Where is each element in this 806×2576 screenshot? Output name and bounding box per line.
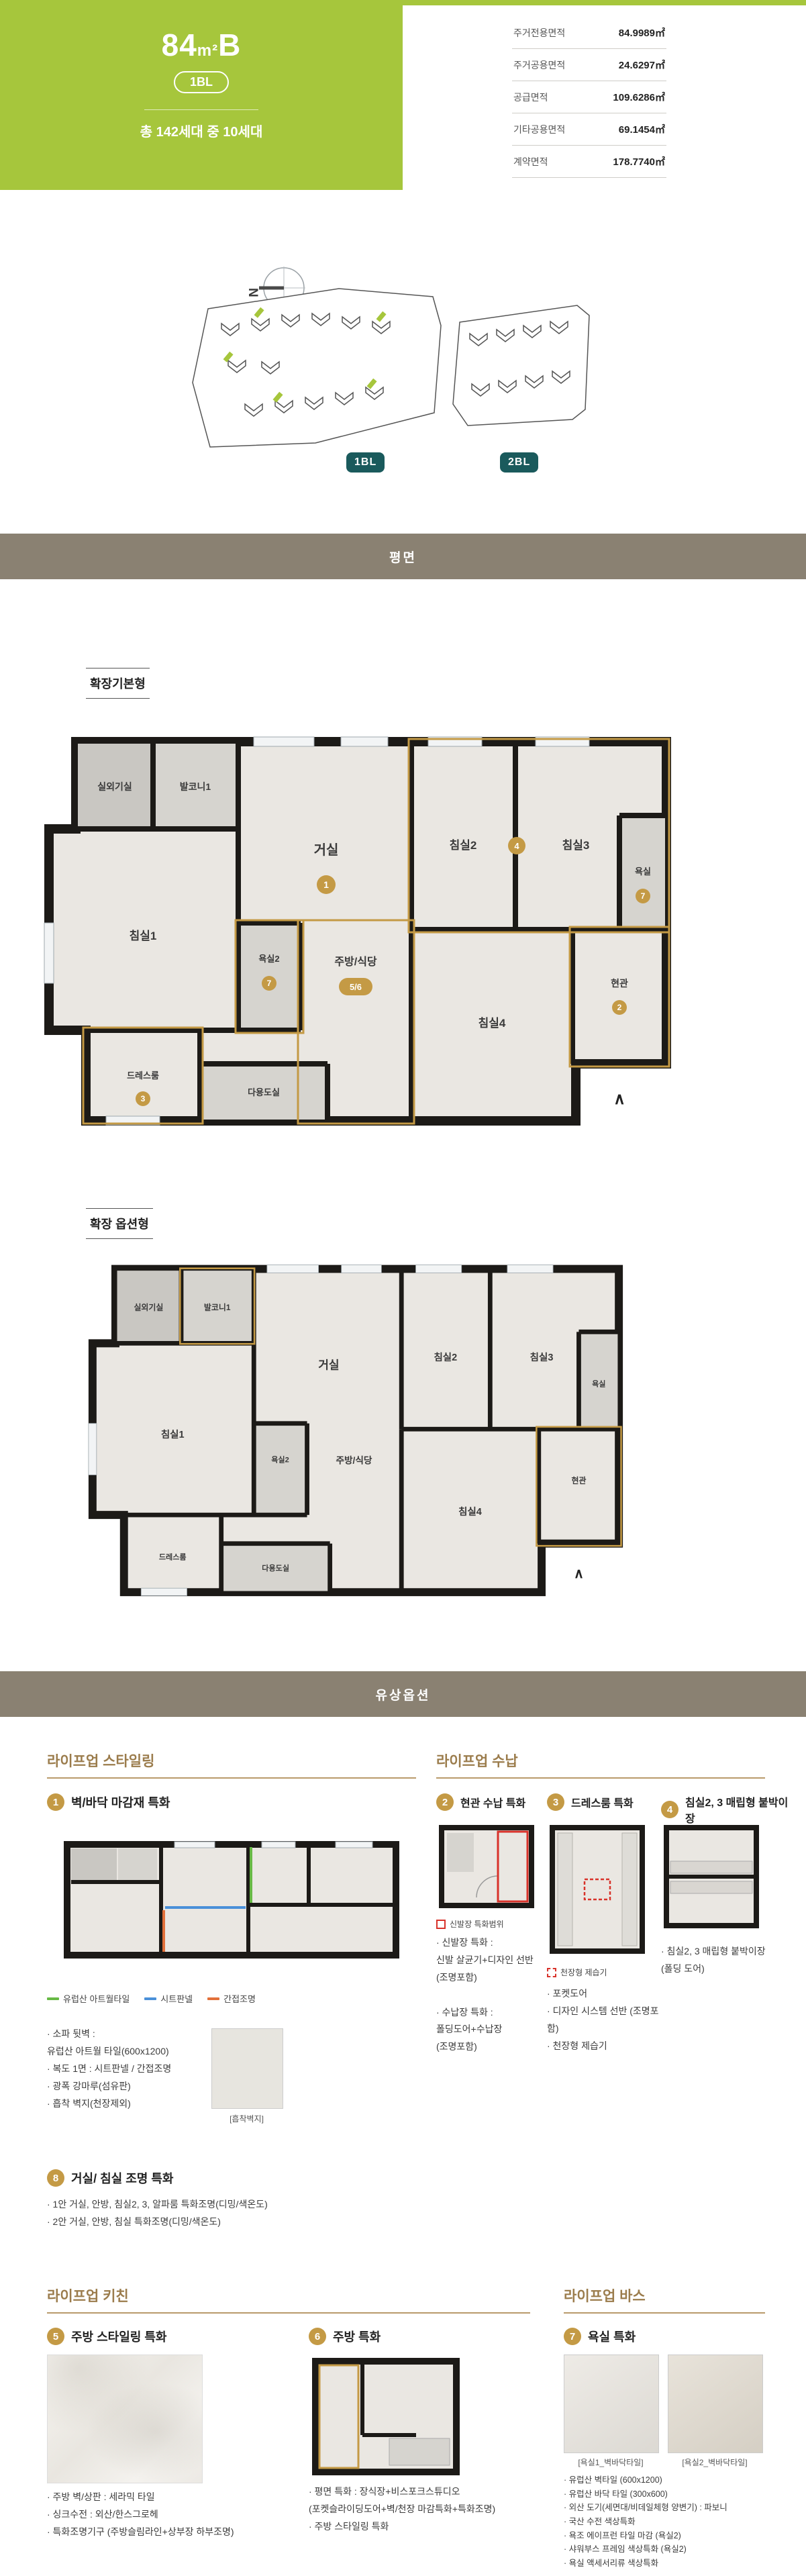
unit-count-text: 총 142세대 중 10세대 [140,121,263,140]
item8-number-badge: 8 [47,2169,64,2187]
marker-bath: 7 [641,891,646,901]
item3-number-badge: 3 [547,1793,564,1811]
legend-red-dashed-box [547,1968,556,1977]
room-living: 거실 [314,842,339,858]
area-label: 공급면적 [513,91,548,104]
area-value: 178.7740㎡ [613,154,665,168]
floorplan-option: 실외기실 발코니1 침실1 거실 침실2 침실3 욕실 욕실2 주방/식당 침실… [84,1252,627,1601]
entry-arrow: ∧ [574,1566,584,1581]
bath2-tile-swatch [668,2355,763,2453]
plan-option-label: 확장 옵션형 [86,1208,153,1239]
item3-bullets: · 포켓도어 · 디자인 시스템 선반 (조명포함) · 천장형 제습기 [547,1985,661,2055]
styling-underline [47,1777,416,1779]
item2-title-row: 2 현관 수납 특화 [436,1793,525,1811]
site-badge-2bl: 2BL [500,452,538,473]
item7-title: 욕실 특화 [588,2328,636,2345]
item3-title-row: 3 드레스룸 특화 [547,1793,634,1811]
item6-bullets: · 평면 특화 : 장식장+비스포크스튜디오 (포켓슬라이딩도어+벽/천장 마감… [309,2483,557,2536]
legend-label: 간접조명 [223,1992,256,2005]
floorplan-basic: 실외기실 발코니1 침실1 거실 1 침실2 4 침실3 욕실 7 욕실2 7 … [39,722,676,1131]
title-unit: m² [197,42,218,60]
room-dress: 드레스룸 [159,1552,187,1562]
legend-label: 유럽산 아트월타일 [63,1992,130,2005]
room-outdoor-unit: 실외기실 [97,781,132,792]
item4-title-row: 4 침실2, 3 매립형 붙박이장 [661,1793,795,1826]
room-entry: 현관 [611,978,628,989]
bath2-tile-caption: [욕실2_벽바닥타일] [668,2457,762,2468]
table-row: 주거공용면적 24.6297㎡ [512,49,666,81]
legend-sheet: 시트판넬 [144,1992,193,2005]
green-top-strip [403,0,806,5]
table-row: 계약면적 178.7740㎡ [512,146,666,178]
dressroom-mini-plan [547,1822,648,1956]
wallpaper-swatch-caption: [흡착벽지] [211,2113,282,2124]
item3-legend: 천장형 제습기 [547,1967,607,1978]
table-row: 주거전용면적 84.9989㎡ [512,17,666,49]
brochure-page: 84m²B 1BL 총 142세대 중 10세대 주거전용면적 84.9989㎡… [0,0,806,2576]
marker-living: 1 [323,879,329,890]
bath-underline [564,2312,765,2314]
styling-mini-plan [47,1824,416,1977]
area-label: 주거공용면적 [513,58,565,72]
bedroom23-mini-plan [661,1822,762,1931]
room-bath2: 욕실2 [271,1455,289,1465]
marker-entry: 2 [617,1003,622,1012]
room-bedroom1: 침실1 [130,929,157,942]
marker-bed23: 4 [514,841,519,851]
page-title: 84m²B [162,27,242,63]
bath1-tile-swatch [564,2355,659,2453]
site-plan-map [144,282,668,483]
item4-number-badge: 4 [661,1801,678,1818]
entry-mini-plan [436,1822,537,1911]
item7-title-row: 7 욕실 특화 [564,2328,636,2345]
room-entry: 현관 [571,1476,586,1485]
header-divider [144,109,258,110]
kitchen-header: 라이프업 키친 [47,2285,129,2306]
item8-title-row: 8 거실/ 침실 조명 특화 [47,2169,173,2187]
item1-title: 벽/바닥 마감재 특화 [71,1793,170,1811]
item2-title: 현관 수납 특화 [460,1794,525,1810]
room-bedroom3: 침실3 [562,838,590,852]
room-bath2: 욕실2 [258,954,279,964]
site-block1-outline [193,289,441,447]
legend-green-swatch [47,1997,59,2000]
item7-bullets: · 유럽산 벽타일 (600x1200) · 유럽산 바닥 타일 (300x60… [564,2473,778,2570]
item5-number-badge: 5 [47,2328,64,2345]
area-value: 69.1454㎡ [619,122,665,136]
bath1-tile-caption: [욕실1_벽바닥타일] [564,2457,658,2468]
legend-artwall: 유럽산 아트월타일 [47,1992,130,2005]
table-row: 공급면적 109.6286㎡ [512,81,666,113]
legend-light: 간접조명 [207,1992,256,2005]
item8-title: 거실/ 침실 조명 특화 [71,2169,173,2187]
title-suffix: B [218,28,241,62]
area-label: 계약면적 [513,155,548,168]
room-dress: 드레스룸 [127,1071,159,1081]
site-block2-outline [453,305,589,426]
room-utility: 다용도실 [262,1563,289,1573]
legend-label: 시트판넬 [160,1992,193,2005]
room-balcony1: 발코니1 [180,781,211,792]
unit-type-header: 84m²B 1BL 총 142세대 중 10세대 [0,0,403,190]
room-utility: 다용도실 [248,1087,280,1097]
marker-kitchen: 5/6 [350,982,362,992]
wallpaper-swatch [211,2028,283,2109]
legend-red-box [436,1920,446,1929]
item6-title-row: 6 주방 특화 [309,2328,381,2345]
area-value: 84.9989㎡ [619,26,665,40]
room-balcony1: 발코니1 [204,1303,231,1312]
room-kitchen: 주방/식당 [334,956,377,968]
room-bedroom3: 침실3 [530,1352,554,1363]
site-badge-1bl: 1BL [346,452,385,473]
legend-blue-swatch [144,1997,156,2000]
storage-underline [436,1777,765,1779]
item6-number-badge: 6 [309,2328,326,2345]
item3-title: 드레스룸 특화 [571,1794,634,1810]
item1-number-badge: 1 [47,1793,64,1811]
item1-title-row: 1 벽/바닥 마감재 특화 [47,1793,170,1811]
item2-legend: 신발장 특화범위 [436,1918,504,1930]
styling-header: 라이프업 스타일링 [47,1750,154,1771]
marker-dress: 3 [141,1094,146,1103]
room-bedroom2: 침실2 [434,1352,457,1363]
room-bedroom1: 침실1 [161,1429,185,1440]
item6-title: 주방 특화 [333,2328,381,2345]
item4-title: 침실2, 3 매립형 붙박이장 [685,1793,795,1826]
section-bar-plan: 평면 [0,534,806,579]
room-bath: 욕실 [592,1379,605,1388]
item2-number-badge: 2 [436,1793,454,1811]
plan-basic-label: 확장기본형 [86,668,150,699]
kitchen-underline [47,2312,530,2314]
room-bath: 욕실 [635,866,651,877]
area-table: 주거전용면적 84.9989㎡ 주거공용면적 24.6297㎡ 공급면적 109… [512,17,666,178]
legend-orange-swatch [207,1997,219,2000]
legend-label: 신발장 특화범위 [450,1918,504,1930]
item5-title: 주방 스타일링 특화 [71,2328,166,2345]
builtin-closet-top [670,1861,752,1873]
item5-title-row: 5 주방 스타일링 특화 [47,2328,166,2345]
area-value: 24.6297㎡ [619,58,665,72]
room-living: 거실 [318,1359,339,1372]
entry-arrow: ∧ [613,1090,625,1108]
room-bedroom4: 침실4 [458,1506,482,1518]
room-bedroom2: 침실2 [450,838,477,852]
area-value: 109.6286㎡ [613,90,665,104]
item5-bullets: · 주방 벽/상판 : 세라믹 타일 · 싱크수전 : 외산/한스그로헤 · 특… [47,2489,289,2541]
kitchen-mini-plan [309,2355,463,2479]
marker-bath2: 7 [267,979,272,988]
marble-swatch [47,2355,203,2483]
area-label: 기타공용면적 [513,123,565,136]
room-outdoor-unit: 실외기실 [134,1303,163,1312]
item2-bullets: · 신발장 특화 : 신발 살균기+디자인 선반 (조명포함) · 수납장 특화… [436,1934,540,2056]
storage-header: 라이프업 수납 [436,1750,518,1771]
styling-legend: 유럽산 아트월타일 시트판넬 간접조명 [47,1992,256,2005]
item1-bullets: · 소파 뒷벽 : 유럽산 아트월 타일(600x1200) · 복도 1면 :… [47,2026,208,2112]
room-bedroom4: 침실4 [478,1016,506,1030]
item8-bullets: · 1안 거실, 안방, 침실2, 3, 알파룸 특화조명(디밍/색온도) · … [47,2196,409,2231]
title-number: 84 [162,28,197,62]
table-row: 기타공용면적 69.1454㎡ [512,113,666,146]
bath-header: 라이프업 바스 [564,2285,646,2306]
section-bar-paid-options: 유상옵션 [0,1671,806,1717]
room-kitchen: 주방/식당 [336,1454,372,1465]
item4-bullets: · 침실2, 3 매립형 붙박이장 (폴딩 도어) [661,1943,775,1978]
block-badge: 1BL [174,71,229,93]
area-label: 주거전용면적 [513,26,565,40]
legend-label: 천장형 제습기 [560,1967,607,1978]
item7-number-badge: 7 [564,2328,581,2345]
builtin-closet-bottom [670,1881,752,1893]
